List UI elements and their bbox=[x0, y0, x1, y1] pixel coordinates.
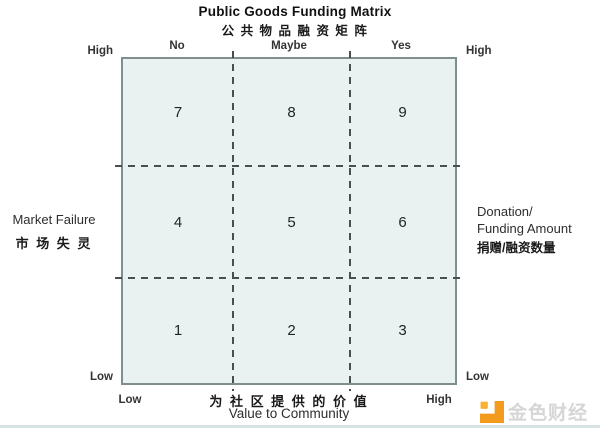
column-label-maybe: Maybe bbox=[233, 40, 345, 52]
public-goods-funding-matrix-diagram: Public Goods Funding Matrix 公 共 物 品 融 资 … bbox=[0, 0, 600, 429]
left-axis-title: Market Failure 市 场 失 灵 bbox=[0, 212, 108, 252]
left-axis-title-zh: 市 场 失 灵 bbox=[0, 233, 108, 252]
column-header-row: No Maybe Yes bbox=[121, 40, 457, 52]
bottom-axis-title-en: Value to Community bbox=[121, 406, 457, 421]
diagram-title: Public Goods Funding Matrix bbox=[0, 4, 590, 19]
right-axis-title: Donation/ Funding Amount 捐赠/融资数量 bbox=[477, 203, 599, 257]
matrix-cell-1: 1 bbox=[123, 278, 233, 383]
brand-name: 金色财经 bbox=[508, 398, 588, 425]
matrix-grid: 7 8 9 4 5 6 1 2 3 bbox=[121, 57, 457, 385]
matrix-cell-6: 6 bbox=[350, 166, 455, 278]
right-axis-title-en-line2: Funding Amount bbox=[477, 220, 599, 237]
column-label-no: No bbox=[121, 40, 233, 52]
matrix-cell-3: 3 bbox=[350, 278, 455, 383]
matrix-cell-7: 7 bbox=[123, 59, 233, 166]
brand-watermark: 金色财经 bbox=[480, 398, 588, 425]
left-axis-high-tick: High bbox=[0, 45, 113, 57]
matrix-cell-2: 2 bbox=[233, 278, 350, 383]
left-axis-low-tick: Low bbox=[0, 371, 113, 383]
right-axis-low-tick: Low bbox=[466, 371, 489, 383]
right-axis-high-tick: High bbox=[466, 45, 492, 57]
matrix-cells: 7 8 9 4 5 6 1 2 3 bbox=[123, 59, 455, 383]
left-axis-title-en: Market Failure bbox=[0, 212, 108, 227]
jinse-logo-icon bbox=[480, 401, 504, 423]
column-label-yes: Yes bbox=[345, 40, 457, 52]
matrix-cell-5: 5 bbox=[233, 166, 350, 278]
matrix-cell-8: 8 bbox=[233, 59, 350, 166]
matrix-cell-9: 9 bbox=[350, 59, 455, 166]
matrix-cell-4: 4 bbox=[123, 166, 233, 278]
footer-divider-line bbox=[0, 425, 600, 428]
right-axis-title-zh: 捐赠/融资数量 bbox=[477, 240, 599, 257]
diagram-subtitle-zh: 公 共 物 品 融 资 矩 阵 bbox=[0, 20, 590, 39]
right-axis-title-en-line1: Donation/ bbox=[477, 203, 599, 220]
